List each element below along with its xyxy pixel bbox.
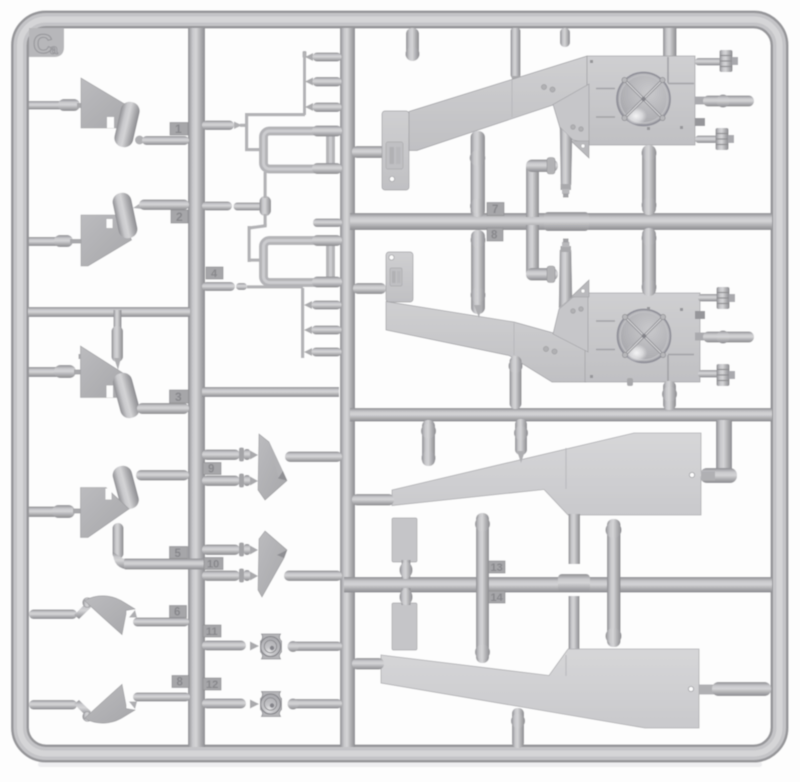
svg-text:13: 13: [491, 562, 503, 574]
svg-text:9: 9: [208, 464, 214, 476]
svg-text:11: 11: [206, 626, 218, 638]
svg-text:1: 1: [175, 122, 182, 136]
svg-text:7: 7: [492, 204, 498, 216]
svg-text:6: 6: [174, 607, 180, 619]
svg-text:12: 12: [206, 679, 218, 691]
svg-text:8: 8: [177, 677, 184, 689]
svg-text:5: 5: [175, 548, 182, 560]
svg-text:10: 10: [207, 559, 219, 571]
svg-text:8: 8: [491, 230, 498, 242]
svg-text:4: 4: [211, 268, 218, 280]
svg-text:3: 3: [175, 390, 182, 404]
svg-text:a: a: [50, 41, 58, 57]
svg-text:2: 2: [176, 210, 183, 224]
svg-text:14: 14: [491, 592, 504, 604]
